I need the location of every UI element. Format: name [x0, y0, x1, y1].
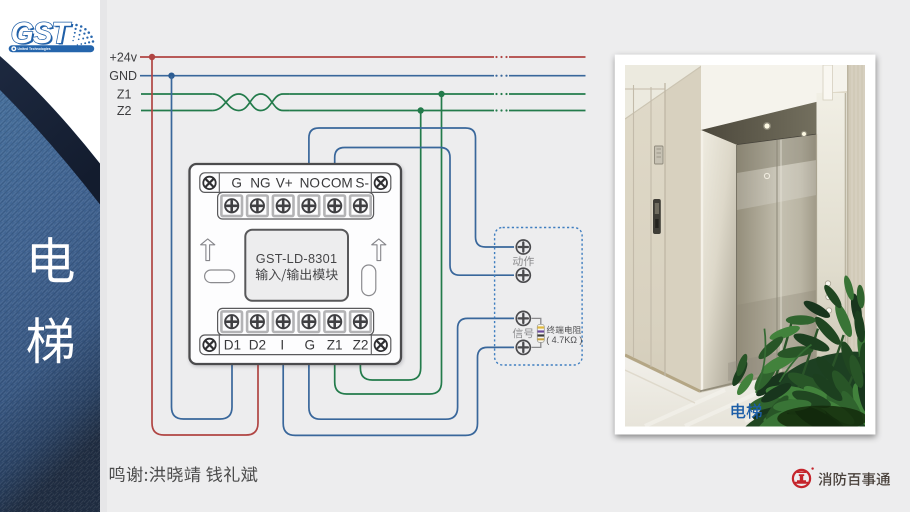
svg-text:D1: D1 — [224, 338, 241, 353]
svg-text:NO: NO — [300, 176, 320, 191]
svg-text:GST-LD-8301: GST-LD-8301 — [256, 252, 338, 266]
svg-text:Z1: Z1 — [327, 338, 343, 353]
svg-text:GND: GND — [109, 69, 137, 83]
svg-text:Z2: Z2 — [117, 104, 132, 118]
svg-text:Z2: Z2 — [353, 338, 369, 353]
svg-text:( 4.7KΩ ): ( 4.7KΩ ) — [546, 335, 582, 345]
svg-text:United Technologies: United Technologies — [18, 47, 51, 51]
svg-text:+24v: +24v — [110, 50, 138, 64]
svg-text:S-: S- — [355, 176, 369, 191]
svg-text:G: G — [305, 338, 316, 353]
svg-text:I: I — [280, 338, 284, 353]
svg-text:Z1: Z1 — [117, 87, 132, 101]
svg-text:D2: D2 — [249, 338, 266, 353]
svg-text:G: G — [231, 176, 242, 191]
svg-text:COM: COM — [321, 176, 353, 191]
svg-text:NG: NG — [250, 176, 270, 191]
svg-text:V+: V+ — [276, 176, 293, 191]
svg-text:GST: GST — [11, 17, 73, 50]
